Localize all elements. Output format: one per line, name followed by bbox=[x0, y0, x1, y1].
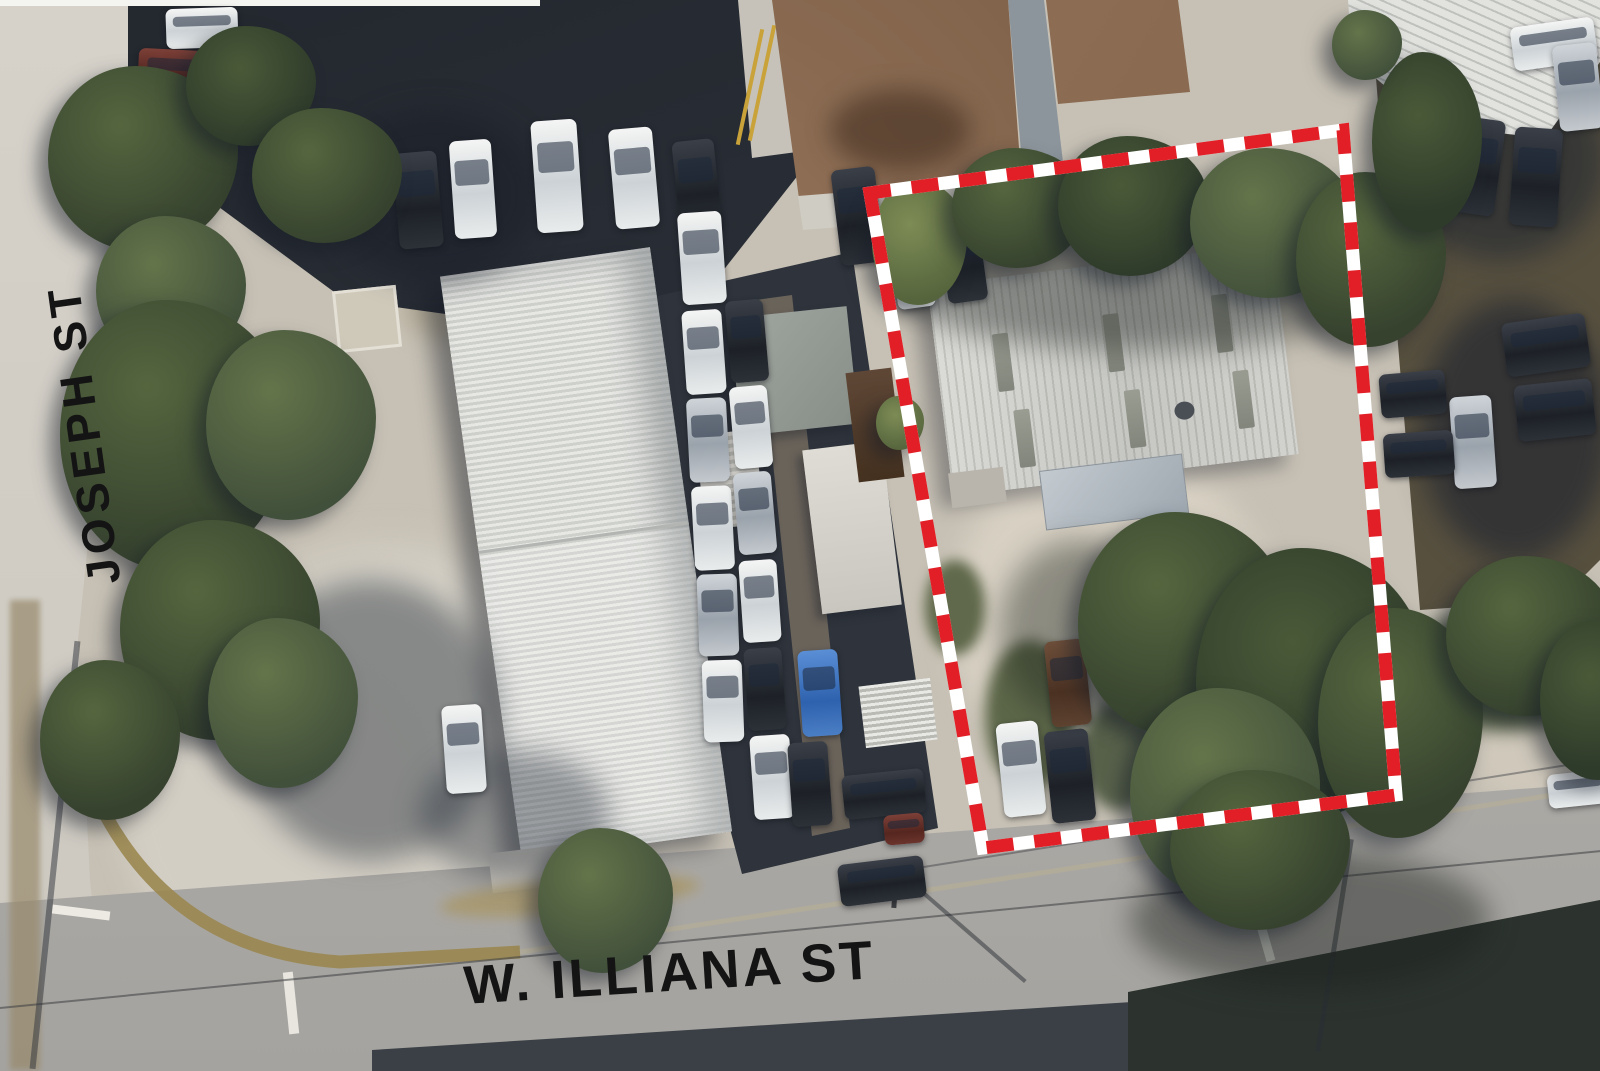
parcel-boundary bbox=[0, 0, 1600, 1071]
aerial-photo: JOSEPH ST W. ILLIANA ST bbox=[0, 0, 1600, 1071]
boundary-red-dashes bbox=[870, 130, 1396, 848]
boundary-gap-dashes bbox=[870, 130, 1396, 848]
